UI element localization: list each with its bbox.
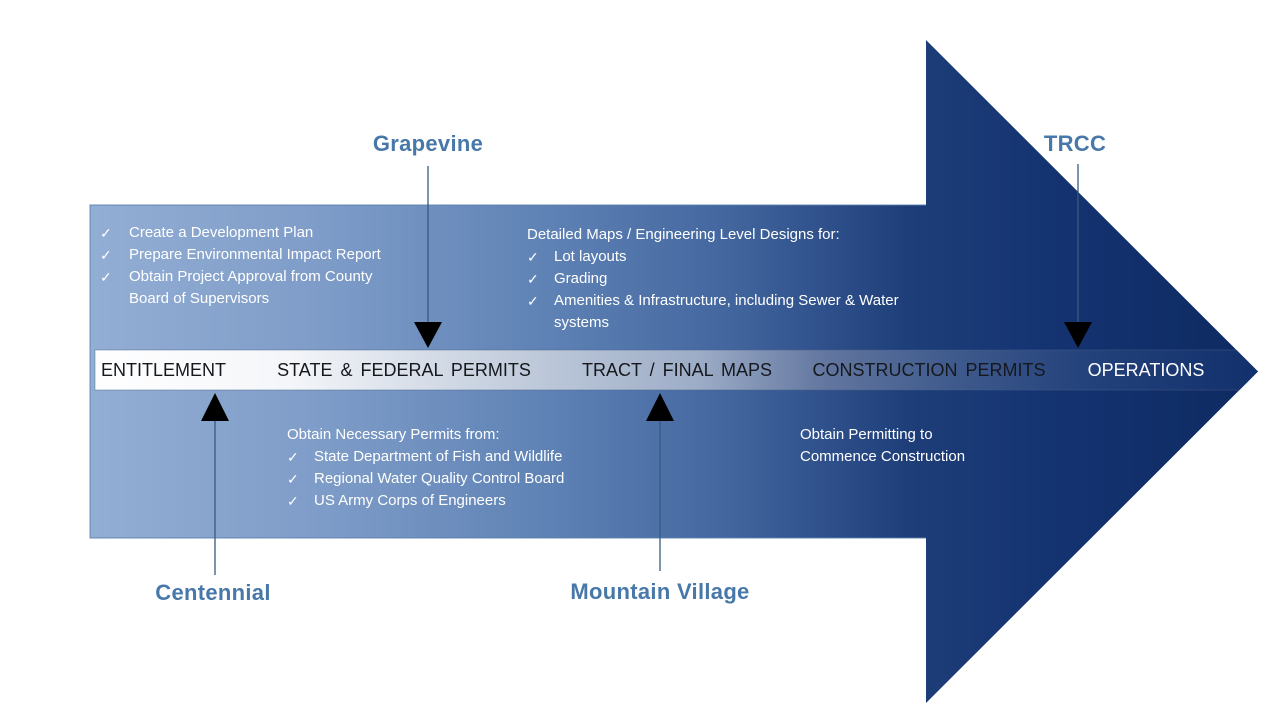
panel-heading: Detailed Maps / Engineering Level Design… xyxy=(527,224,927,246)
stage-label-operations: OPERATIONS xyxy=(1088,357,1205,383)
check-icon: ✓ xyxy=(527,268,554,290)
list-item: ✓ Grading xyxy=(527,268,927,290)
project-label-grapevine: Grapevine xyxy=(373,131,483,157)
list-item-text: Obtain Project Approval from County Boar… xyxy=(129,266,389,310)
project-label-centennial: Centennial xyxy=(155,580,270,606)
entitlement-panel: ✓ Create a Development Plan ✓ Prepare En… xyxy=(100,222,410,310)
list-item-text: Create a Development Plan xyxy=(129,222,389,244)
stage-label-construction-permits: CONSTRUCTION PERMITS xyxy=(812,357,1045,383)
process-flow-slide: Grapevine TRCC Centennial Mountain Villa… xyxy=(0,0,1280,720)
stage-label-entitlement: ENTITLEMENT xyxy=(101,357,226,383)
list-item: ✓ Create a Development Plan xyxy=(100,222,410,244)
list-item-text: US Army Corps of Engineers xyxy=(314,490,614,512)
list-item: ✓ State Department of Fish and Wildlife xyxy=(287,446,627,468)
check-icon: ✓ xyxy=(287,490,314,512)
check-icon: ✓ xyxy=(287,468,314,490)
list-item: ✓ Obtain Project Approval from County Bo… xyxy=(100,266,410,310)
permits-panel: Obtain Necessary Permits from: ✓ State D… xyxy=(287,424,627,512)
check-icon: ✓ xyxy=(527,290,554,312)
list-item-text: Amenities & Infrastructure, including Se… xyxy=(554,290,924,334)
list-item: ✓ Regional Water Quality Control Board xyxy=(287,468,627,490)
check-icon: ✓ xyxy=(527,246,554,268)
list-item-text: Grading xyxy=(554,268,924,290)
list-item-text: Lot layouts xyxy=(554,246,924,268)
list-item-text: State Department of Fish and Wildlife xyxy=(314,446,614,468)
project-label-trcc: TRCC xyxy=(1044,131,1106,157)
detailed-maps-panel: Detailed Maps / Engineering Level Design… xyxy=(527,224,927,334)
list-item-text: Regional Water Quality Control Board xyxy=(314,468,614,490)
stage-label-state-federal-permits: STATE & FEDERAL PERMITS xyxy=(277,357,531,383)
check-icon: ✓ xyxy=(287,446,314,468)
project-label-mountain-village: Mountain Village xyxy=(570,579,749,605)
list-item-text: Prepare Environmental Impact Report xyxy=(129,244,389,266)
list-item: ✓ Lot layouts xyxy=(527,246,927,268)
list-item: ✓ Prepare Environmental Impact Report xyxy=(100,244,410,266)
stage-label-tract-final-maps: TRACT / FINAL MAPS xyxy=(582,357,772,383)
panel-text: Obtain Permitting to Commence Constructi… xyxy=(800,424,978,468)
list-item: ✓ Amenities & Infrastructure, including … xyxy=(527,290,927,334)
list-item: ✓ US Army Corps of Engineers xyxy=(287,490,627,512)
check-icon: ✓ xyxy=(100,222,129,244)
panel-heading: Obtain Necessary Permits from: xyxy=(287,424,627,446)
check-icon: ✓ xyxy=(100,266,129,288)
check-icon: ✓ xyxy=(100,244,129,266)
construction-panel: Obtain Permitting to Commence Constructi… xyxy=(800,424,978,468)
